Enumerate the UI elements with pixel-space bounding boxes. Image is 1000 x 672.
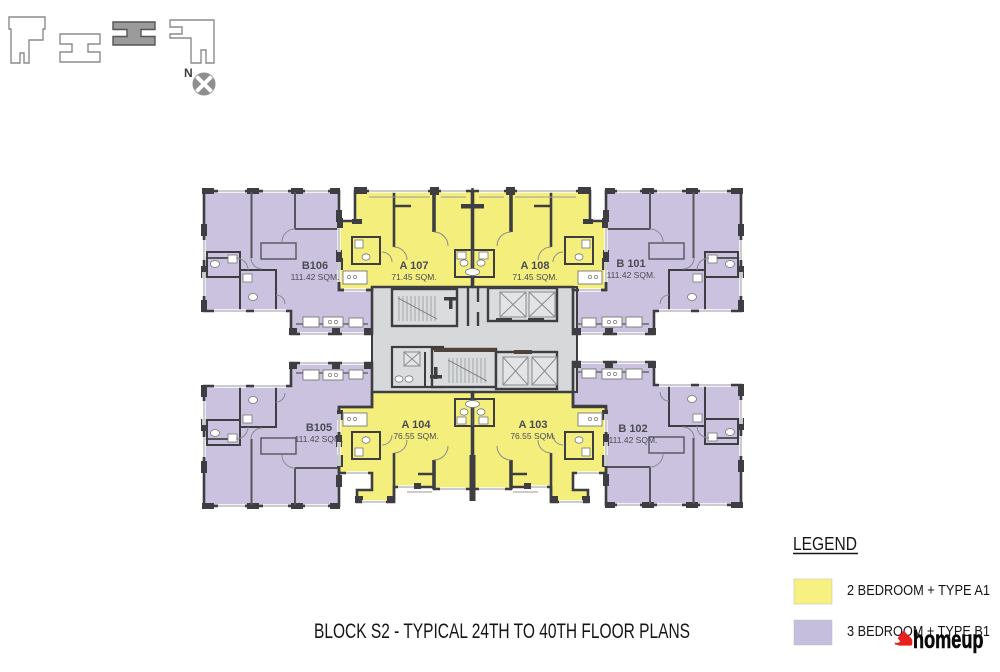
svg-text:A 104: A 104 [402, 419, 432, 431]
svg-text:111.42 SQM.: 111.42 SQM. [295, 434, 344, 444]
svg-text:LEGEND: LEGEND [793, 534, 857, 554]
svg-text:homeup: homeup [913, 625, 983, 654]
svg-text:A 103: A 103 [519, 419, 548, 431]
svg-text:76.55 SQM.: 76.55 SQM. [510, 431, 555, 441]
svg-text:BLOCK S2 - TYPICAL 24TH TO 40T: BLOCK S2 - TYPICAL 24TH TO 40TH FLOOR PL… [314, 619, 690, 643]
svg-text:76.55 SQM.: 76.55 SQM. [393, 431, 438, 441]
svg-text:B105: B105 [306, 422, 332, 434]
svg-text:B106: B106 [302, 260, 328, 272]
svg-text:111.42 SQM.: 111.42 SQM. [291, 272, 340, 282]
svg-text:111.42 SQM.: 111.42 SQM. [607, 270, 656, 280]
svg-text:A 108: A 108 [521, 260, 550, 272]
svg-text:2 BEDROOM + TYPE A1: 2 BEDROOM + TYPE A1 [847, 582, 990, 599]
svg-text:B 101: B 101 [616, 258, 645, 270]
svg-text:71.45 SQM.: 71.45 SQM. [512, 272, 557, 282]
svg-text:B 102: B 102 [618, 423, 647, 435]
svg-text:111.42 SQM.: 111.42 SQM. [609, 435, 658, 445]
svg-text:A 107: A 107 [400, 260, 429, 272]
svg-text:N: N [184, 66, 193, 80]
svg-text:71.45 SQM.: 71.45 SQM. [391, 272, 436, 282]
